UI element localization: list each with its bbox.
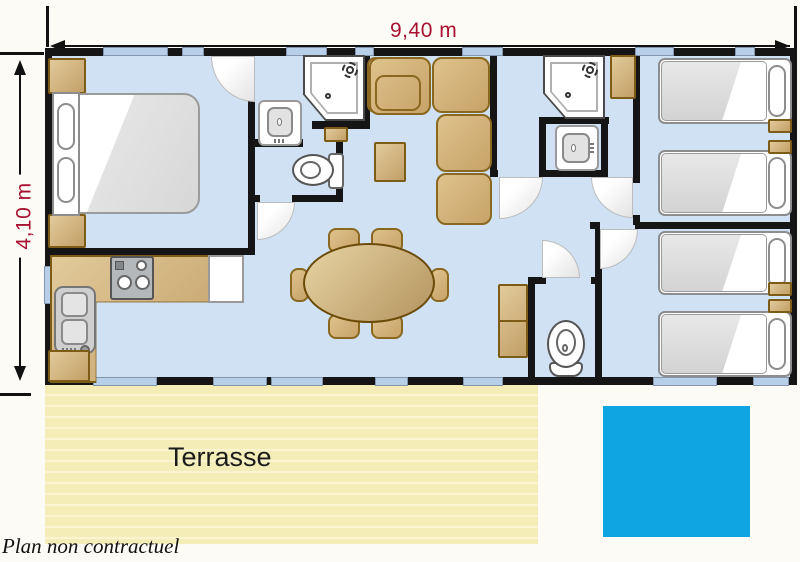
shower-head-icon	[586, 66, 594, 74]
nightstand	[768, 299, 792, 313]
sheet-fold	[80, 95, 198, 212]
toilet	[546, 320, 586, 378]
pillow	[768, 157, 786, 209]
dining-table	[303, 243, 435, 323]
kitchen-cabinet	[48, 350, 90, 382]
single-bed	[658, 311, 792, 377]
fridge	[208, 255, 244, 303]
duvet	[661, 234, 767, 292]
shower-stall	[543, 55, 605, 119]
sliding-glass-door	[271, 377, 323, 386]
terrace	[45, 385, 538, 544]
shower-stall	[303, 55, 365, 121]
single-bed	[658, 150, 792, 216]
pillow	[768, 238, 786, 288]
sofa-cushion	[369, 57, 431, 115]
nightstand	[48, 214, 86, 248]
wall-bedroom2-3-divider	[590, 222, 600, 229]
stove	[110, 256, 154, 300]
tap-icon	[590, 141, 594, 153]
drain-icon	[565, 92, 571, 98]
toilet	[292, 152, 344, 190]
sheet-fold	[662, 235, 766, 291]
bathroom-cabinet	[610, 55, 636, 99]
wall-hall-top	[490, 170, 498, 177]
nightstand	[768, 119, 792, 133]
arrow-up-icon	[14, 60, 26, 75]
faucet-icon	[277, 118, 282, 126]
tap-icon	[274, 139, 286, 143]
faucet-icon	[571, 144, 576, 152]
disclaimer-text: Plan non contractuel	[2, 534, 179, 559]
mattress	[78, 93, 200, 214]
nightstand	[48, 58, 86, 94]
wall-wc-top	[591, 277, 602, 284]
nightstand	[768, 140, 792, 154]
window	[182, 47, 204, 56]
pool	[603, 406, 750, 537]
plan-depth-dimension-label: 4,10 m	[13, 174, 37, 257]
window	[463, 377, 503, 386]
pillow	[768, 318, 786, 370]
sheet-fold	[662, 315, 766, 373]
double-bed	[52, 92, 200, 216]
duvet	[661, 61, 767, 121]
pillow	[57, 157, 75, 203]
sink-basin	[61, 319, 88, 345]
sheet-fold	[662, 62, 766, 120]
kitchen-sink	[54, 286, 96, 354]
sofa-cushion	[436, 114, 492, 172]
pillow	[768, 65, 786, 117]
window	[103, 47, 168, 56]
wall-bath1-bottom	[248, 195, 260, 202]
toilet-bowl-inner	[300, 161, 321, 179]
wall-wc-left	[528, 277, 535, 385]
dimension-tick	[0, 393, 31, 396]
sink-basin	[61, 292, 88, 317]
burner-icon	[135, 275, 150, 290]
window	[735, 47, 755, 56]
plan-width-dimension-label: 9,40 m	[382, 19, 465, 43]
bathroom-cabinet	[324, 127, 348, 142]
wardrobe-shelf-divider	[500, 320, 526, 322]
sofa-seat-seam	[375, 75, 421, 111]
arrow-down-icon	[14, 366, 26, 381]
single-bed	[658, 58, 792, 124]
sofa-cushion	[432, 57, 490, 113]
pillow	[57, 103, 75, 150]
terrace-label: Terrasse	[168, 442, 272, 473]
burner-icon	[136, 260, 147, 271]
sheet-fold	[662, 154, 766, 212]
basin	[562, 133, 590, 163]
shower-head-icon	[346, 66, 354, 74]
wall-hall-top	[545, 170, 608, 177]
window	[375, 377, 408, 386]
window	[653, 377, 717, 386]
coffee-table	[374, 142, 406, 182]
wall-bath2-sink-right	[601, 124, 608, 177]
duvet	[661, 314, 767, 374]
window	[753, 377, 789, 386]
sofa-cushion	[436, 173, 492, 225]
window	[462, 47, 503, 56]
wall-bedroom1-right	[248, 100, 255, 255]
floorplan-page: 9,40 m 4,10 m Terrasse	[0, 0, 800, 562]
burner-icon	[117, 275, 132, 290]
drain-icon	[325, 93, 331, 99]
wardrobe	[498, 284, 528, 358]
wall-bath2-left	[539, 117, 546, 177]
sliding-glass-door	[213, 377, 267, 386]
window	[635, 47, 674, 56]
dimension-tick	[46, 6, 49, 47]
wall-bedroom2-3-divider	[635, 222, 797, 229]
drain-icon	[562, 344, 568, 352]
wall-bath1-bottom	[292, 195, 343, 202]
duvet	[661, 153, 767, 213]
dimension-tick	[0, 52, 44, 55]
washbasin	[258, 100, 302, 146]
washbasin	[555, 125, 599, 171]
wall-bedroom1-kitchen	[45, 248, 255, 255]
stove-knob	[115, 261, 124, 270]
toilet-bowl-inner	[556, 329, 576, 356]
nightstand	[768, 282, 792, 296]
dimension-tick	[794, 6, 797, 48]
